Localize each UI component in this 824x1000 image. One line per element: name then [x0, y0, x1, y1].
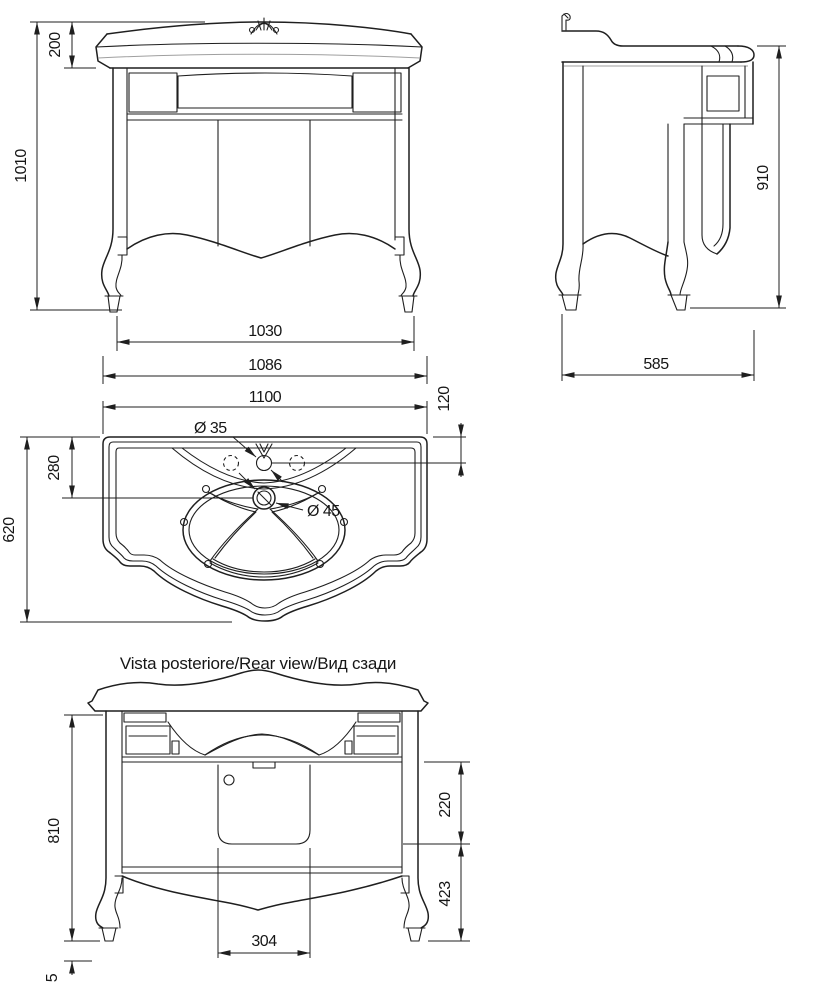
dim-front-feet-span: 1030 [248, 323, 282, 340]
front-view: 200 1010 1030 1086 [13, 18, 427, 384]
drain-hole [253, 487, 275, 509]
front-countertop [96, 22, 422, 68]
dim-rear-lower-height: 423 [437, 881, 454, 907]
dim-top-depth: 620 [1, 517, 18, 543]
technical-drawing-sheet: 200 1010 1030 1086 [0, 0, 824, 1000]
dim-side-depth: 585 [643, 356, 669, 373]
dim-faucet-offset: 120 [436, 386, 453, 412]
top-bowl [181, 480, 348, 580]
rear-countertop [88, 670, 428, 711]
top-faucet-platform [172, 444, 356, 489]
top-dimensions: 1100 Ø 35 Ø 45 120 280 620 [1, 386, 466, 622]
side-wall-bracket [562, 14, 570, 31]
rear-legs [96, 711, 429, 941]
dim-drain-offset: 280 [46, 455, 63, 481]
top-basin-outline [103, 437, 427, 621]
dim-rear-height: 810 [46, 818, 63, 844]
side-countertop [562, 31, 754, 66]
dim-rear-foot-adjust: 5 [44, 973, 61, 982]
front-crest-ornament [250, 18, 279, 34]
front-legs [102, 68, 421, 312]
rear-view: Vista posteriore/Rear view/Вид сзади [44, 654, 470, 982]
rear-sink-silhouette [168, 722, 356, 755]
rear-panel-hole [224, 775, 234, 785]
dim-side-height: 910 [755, 165, 772, 191]
dim-drain-hole-diameter: Ø 45 [307, 503, 340, 520]
front-dimensions: 200 1010 1030 1086 [13, 22, 427, 384]
dim-front-overall-width: 1086 [248, 357, 282, 374]
rear-dimensions: 810 5 220 423 304 [44, 715, 470, 982]
front-frame [118, 68, 404, 258]
top-view: 1100 Ø 35 Ø 45 120 280 620 [1, 386, 466, 622]
dim-front-total-height: 1010 [13, 149, 30, 183]
dim-rear-panel-height: 220 [437, 792, 454, 818]
dim-faucet-hole-diameter: Ø 35 [194, 420, 227, 437]
rear-cabinet [115, 757, 409, 910]
side-view: 910 585 [556, 14, 786, 382]
vanity-drawing: 200 1010 1030 1086 [0, 0, 824, 1000]
dim-front-countertop-height: 200 [47, 32, 64, 58]
side-cabinet [556, 62, 753, 310]
dim-top-width: 1100 [249, 389, 282, 406]
dim-rear-panel-width: 304 [251, 933, 277, 950]
optional-hole-left [224, 456, 239, 471]
